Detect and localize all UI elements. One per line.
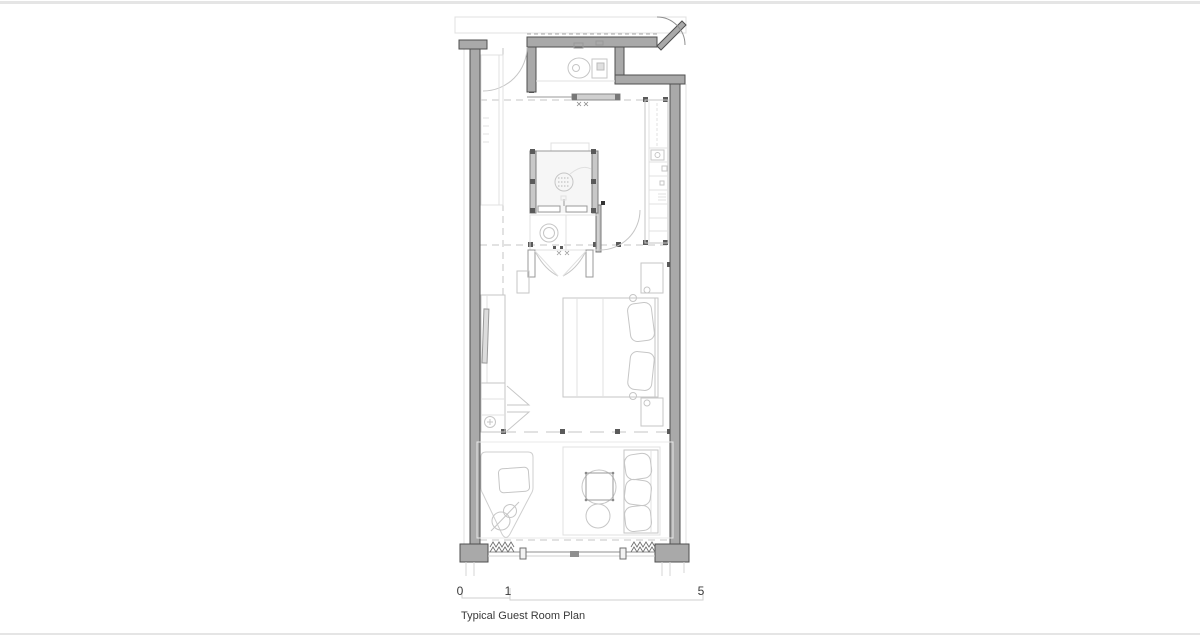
corner-column-left: [460, 544, 488, 562]
bathroom: [527, 41, 620, 106]
entry-closet: [481, 55, 503, 205]
nightstand-upper: [641, 263, 663, 293]
vanity: [530, 215, 598, 255]
wall-bathroom-east: [615, 47, 624, 77]
wall-bathroom-west: [527, 47, 536, 92]
shower-bench-1: [538, 206, 560, 212]
window-wall: [460, 542, 689, 576]
scale-label-five: 5: [698, 584, 705, 598]
wall-right: [670, 84, 680, 545]
shower-bench-2: [566, 206, 587, 212]
folding-door-post-right: [586, 250, 593, 277]
scale-bar-line: [462, 588, 703, 600]
wall-upper-right: [615, 75, 685, 84]
table-chair: [586, 504, 610, 528]
entry-door-leaf: [657, 21, 686, 50]
entry-door-swing-arc: [657, 17, 685, 45]
frame-top-line: [0, 1, 1200, 4]
tv-console: [481, 295, 505, 383]
vestibule-door-swing: [483, 47, 527, 91]
scale-bar: 0 1 5: [457, 584, 705, 600]
wall-top: [527, 37, 657, 47]
minibar-item-2: [660, 181, 664, 185]
window-mullion-left: [520, 548, 526, 559]
shower-enclosure: [530, 143, 598, 213]
vanity-sink-icon: [540, 224, 558, 242]
wardrobe-shelving: [645, 100, 668, 243]
floor-grille-right: [631, 542, 655, 552]
vestibule-door-arc: [483, 47, 527, 91]
window-center-post: [570, 551, 579, 557]
sitting-area: [477, 442, 673, 538]
column-stubs: [466, 562, 684, 576]
shower-niche: [551, 143, 589, 151]
bed: [563, 295, 658, 400]
door-hinge-dot: [601, 201, 605, 205]
corridor-outline: [455, 17, 686, 34]
folding-doors: [528, 246, 593, 277]
window-mullion-right: [620, 548, 626, 559]
floor-plan-svg: 0 1 5 Typical Guest Room Plan: [0, 0, 1200, 640]
wall-tv: [517, 271, 529, 293]
daybed-sofa: [623, 450, 658, 533]
drawing-sheet: 0 1 5 Typical Guest Room Plan: [0, 0, 1200, 640]
scale-label-zero: 0: [457, 584, 464, 598]
work-desk: [481, 452, 533, 538]
wall-top-left-cap: [459, 40, 487, 49]
tv-icon: [482, 309, 489, 363]
corner-column-right: [655, 544, 689, 562]
safe: [651, 150, 664, 160]
round-table: [582, 470, 616, 528]
corridor-slab: [455, 17, 686, 33]
minibar-item-1: [662, 166, 667, 171]
wall-left: [470, 49, 480, 545]
floor-grille-left: [490, 542, 514, 552]
scale-label-one: 1: [505, 584, 512, 598]
minibar-cabinet: [481, 383, 505, 432]
toilet: [568, 58, 607, 78]
entry-closet-outline: [481, 55, 503, 205]
frame-bottom-line: [0, 633, 1200, 635]
nightstand-lower: [641, 398, 663, 426]
closet-bifold-doors: [507, 386, 529, 431]
plan-title: Typical Guest Room Plan: [461, 610, 585, 622]
